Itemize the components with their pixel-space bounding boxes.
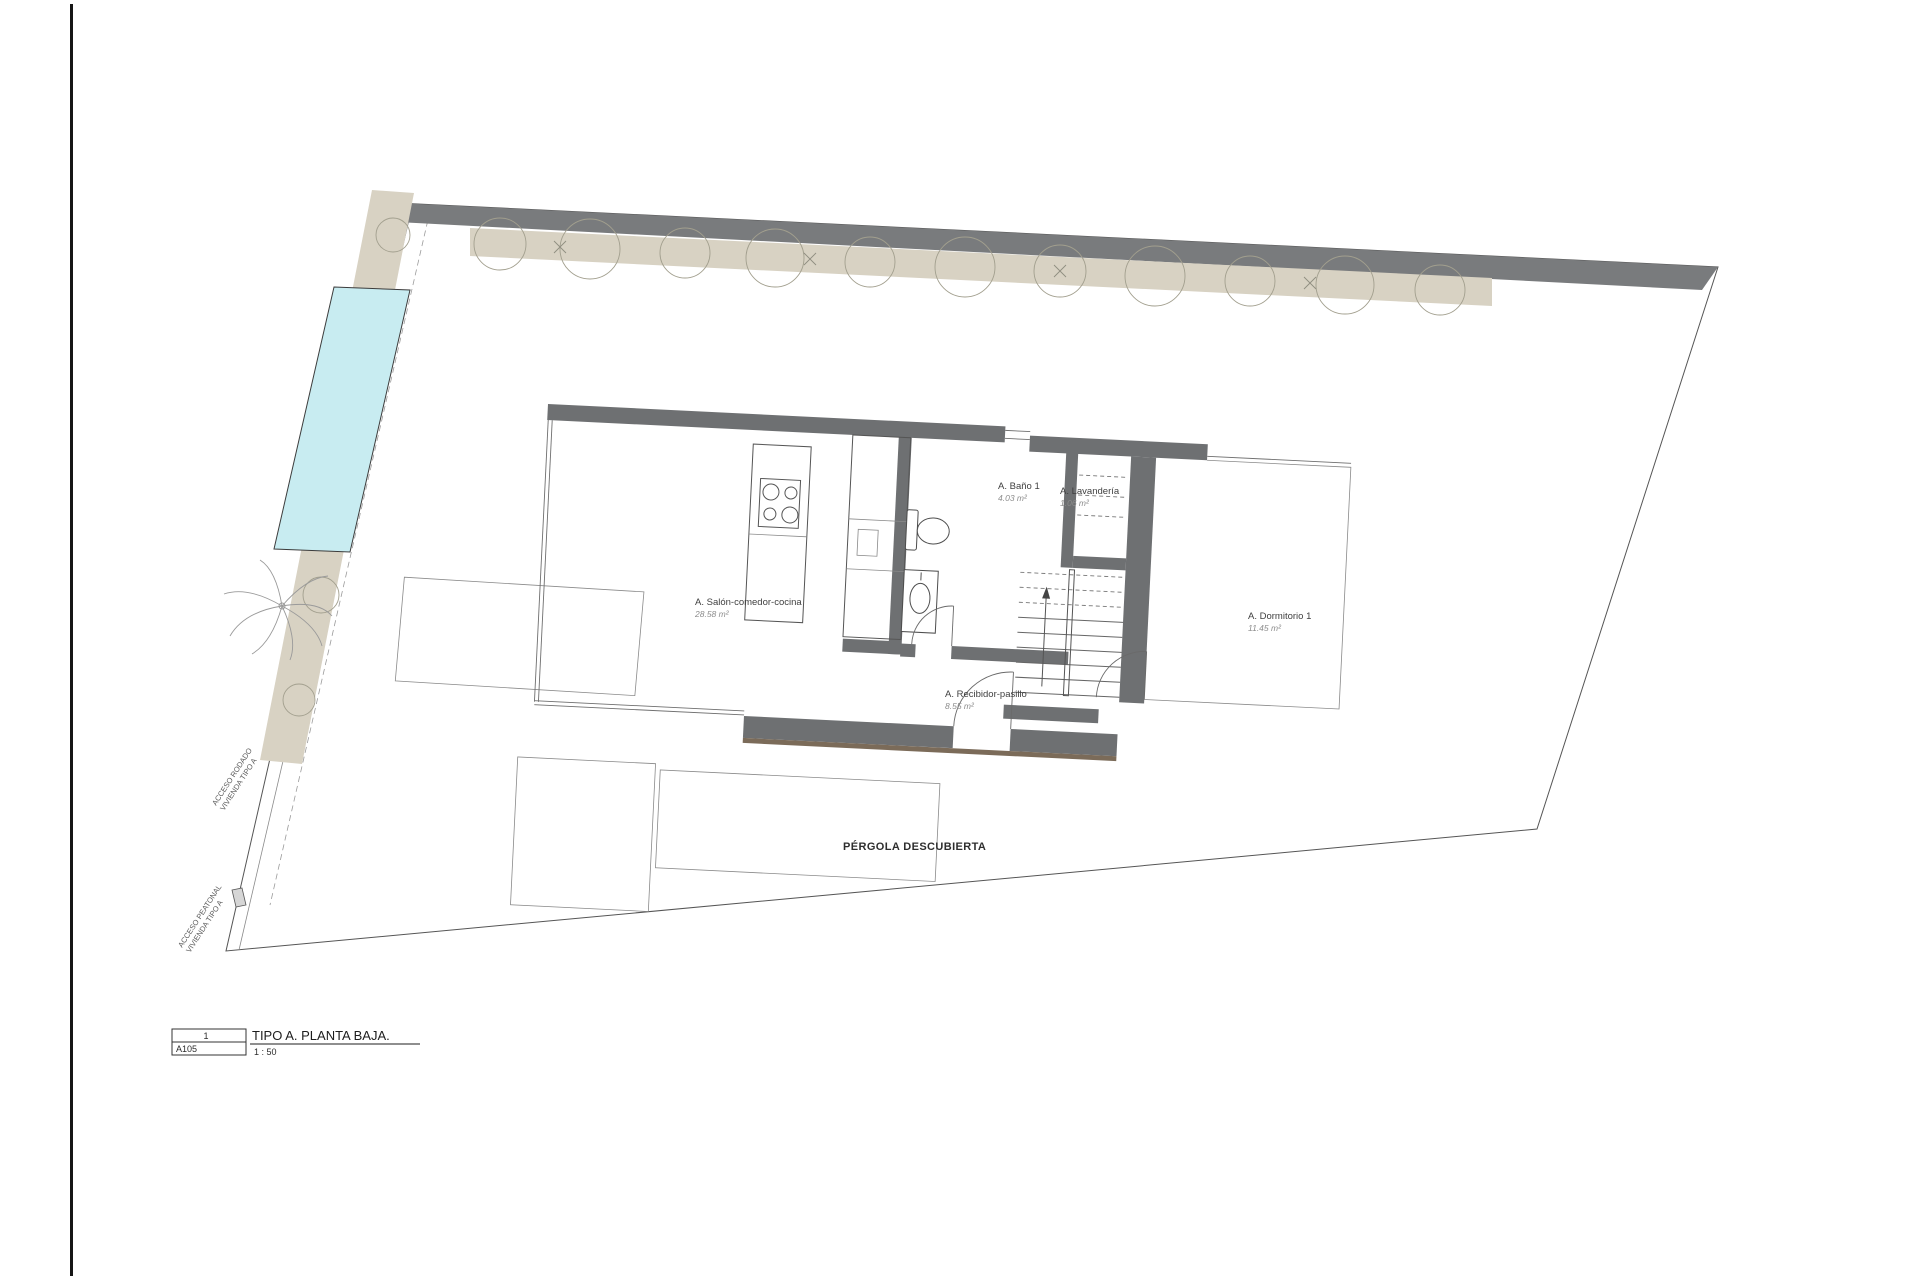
salon-glazing [534, 408, 1352, 744]
access-label-rodado: ACCESO RODADO VIVIENDA TIPO A [210, 746, 262, 812]
kitchen-island [745, 444, 812, 623]
wall-north-main [547, 404, 1005, 442]
house [385, 397, 1352, 945]
room-labels: A. Salón-comedor-cocina 28.58 m² A. Baño… [694, 481, 1311, 853]
pergola-area-east [655, 770, 939, 882]
pergola-area-west [510, 757, 655, 912]
room-label-lavanderia: A. Lavandería [1060, 486, 1120, 497]
staircase [1014, 567, 1125, 698]
room-label-salon: A. Salón-comedor-cocina [695, 597, 802, 608]
wall-lavanderia-south [1073, 556, 1127, 571]
title-block: 1 A105 TIPO A. PLANTA BAJA. 1 : 50 [172, 1028, 420, 1057]
gate-symbol [232, 888, 246, 907]
house-walls [532, 404, 1208, 760]
toilet-icon [905, 510, 918, 550]
dormitorio-outline [1144, 458, 1351, 709]
drawing-title: TIPO A. PLANTA BAJA. [252, 1028, 390, 1043]
room-area-dormitorio: 11.45 m² [1248, 623, 1282, 633]
wall-bano-south-a [900, 644, 916, 658]
room-label-dormitorio: A. Dormitorio 1 [1248, 611, 1311, 622]
wall-under-stairs [1003, 705, 1099, 724]
room-area-lavanderia: 1.06 m² [1060, 498, 1090, 508]
pool [274, 287, 410, 552]
floor-plan-canvas: A. Salón-comedor-cocina 28.58 m² A. Baño… [0, 0, 1920, 1280]
drawing-number: 1 [203, 1031, 208, 1041]
site-boundary [226, 203, 1718, 951]
drawing-sheet: A. Salón-comedor-cocina 28.58 m² A. Baño… [0, 0, 1920, 1280]
sheet-code: A105 [176, 1044, 197, 1054]
room-area-recibidor: 8.55 m² [945, 701, 975, 711]
wall-north-dormitorio [1029, 436, 1208, 461]
cooktop-icon [758, 478, 800, 528]
drawing-scale: 1 : 50 [254, 1047, 277, 1057]
sheet-border-line [70, 4, 73, 1276]
room-label-bano: A. Baño 1 [998, 481, 1040, 492]
access-label-peatonal: ACCESO PEATONAL VIVIENDA TIPO A [176, 883, 231, 954]
room-label-recibidor: A. Recibidor-pasillo [945, 689, 1027, 700]
stair-direction-arrow [1042, 594, 1047, 687]
terrace-west [395, 577, 644, 696]
room-area-salon: 28.58 m² [694, 609, 730, 619]
stair-rail [1063, 570, 1074, 696]
pergola-label: PÉRGOLA DESCUBIERTA [843, 840, 986, 853]
room-area-bano: 4.03 m² [998, 493, 1028, 503]
wall-stair-dormitorio [1119, 457, 1156, 704]
